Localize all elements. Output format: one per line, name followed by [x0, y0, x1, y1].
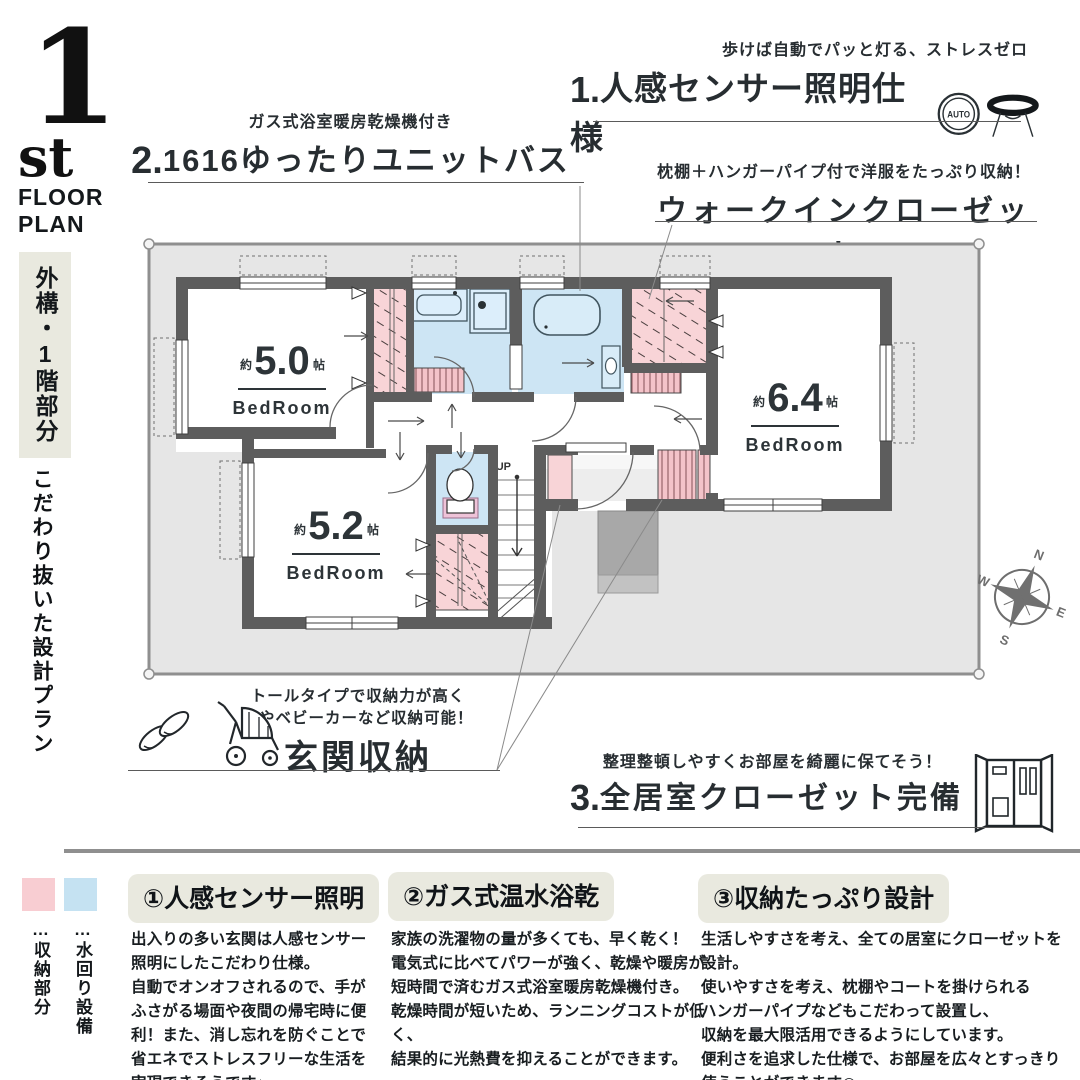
- bathtub: [534, 295, 600, 335]
- entrance-cabinet-left: [548, 455, 572, 501]
- legend-storage-swatch: [22, 878, 55, 911]
- svg-text:S: S: [998, 632, 1012, 649]
- svg-text:N: N: [1032, 546, 1046, 563]
- feature-2-body: 家族の洗濯物の量が多くても、早く乾く！ 電気式に比べてパワーが強く、乾燥や暖房が…: [391, 928, 706, 1072]
- svg-text:BedRoom: BedRoom: [746, 435, 845, 455]
- svg-text:約: 約: [240, 357, 252, 372]
- legend-storage-label: …収納部分: [28, 920, 53, 1017]
- vanity: [602, 346, 620, 388]
- footer-divider: [64, 849, 1080, 853]
- entrance-porch: [598, 511, 658, 593]
- feature-3-heading-pill: ③収納たっぷり設計: [698, 874, 949, 923]
- sink-counter: [413, 289, 467, 321]
- floor-plan-poster: 1 st FLOOR PLAN 外構・1階部分 こだわり抜いた設計プラン ガス式…: [0, 0, 1080, 1080]
- entrance-cabinet-right: [658, 450, 696, 501]
- washing-machine: [470, 289, 510, 333]
- stairs-up-label: UP: [496, 461, 511, 473]
- svg-text:E: E: [1054, 604, 1068, 621]
- svg-text:約: 約: [753, 394, 765, 409]
- wic-shelf: [631, 371, 681, 393]
- legend-water-swatch: [64, 878, 97, 911]
- svg-text:5.0: 5.0: [254, 339, 310, 383]
- svg-text:帖: 帖: [367, 522, 379, 537]
- svg-text:約: 約: [294, 522, 306, 537]
- feature-2-heading-pill: ②ガス式温水浴乾: [388, 872, 614, 921]
- svg-text:帖: 帖: [313, 357, 325, 372]
- svg-text:BedRoom: BedRoom: [287, 563, 386, 583]
- closet-5-2: [430, 532, 492, 610]
- svg-text:6.4: 6.4: [767, 376, 823, 420]
- svg-text:BedRoom: BedRoom: [233, 398, 332, 418]
- feature-1-body: 出入りの多い玄関は人感センサー 照明にしたこだわり仕様。 自動でオンオフされるの…: [131, 928, 391, 1080]
- svg-text:帖: 帖: [826, 394, 838, 409]
- linen-shelf: [414, 368, 464, 392]
- svg-text:5.2: 5.2: [308, 504, 364, 548]
- walk-in-closet: [629, 286, 709, 364]
- feature-1-heading-pill: ①人感センサー照明: [128, 874, 379, 923]
- legend-water-label: …水回り設備: [70, 920, 95, 1036]
- feature-3-body: 生活しやすさを考え、全ての居室にクローゼットを設計。 使いやすさを考え、枕棚やコ…: [701, 928, 1076, 1080]
